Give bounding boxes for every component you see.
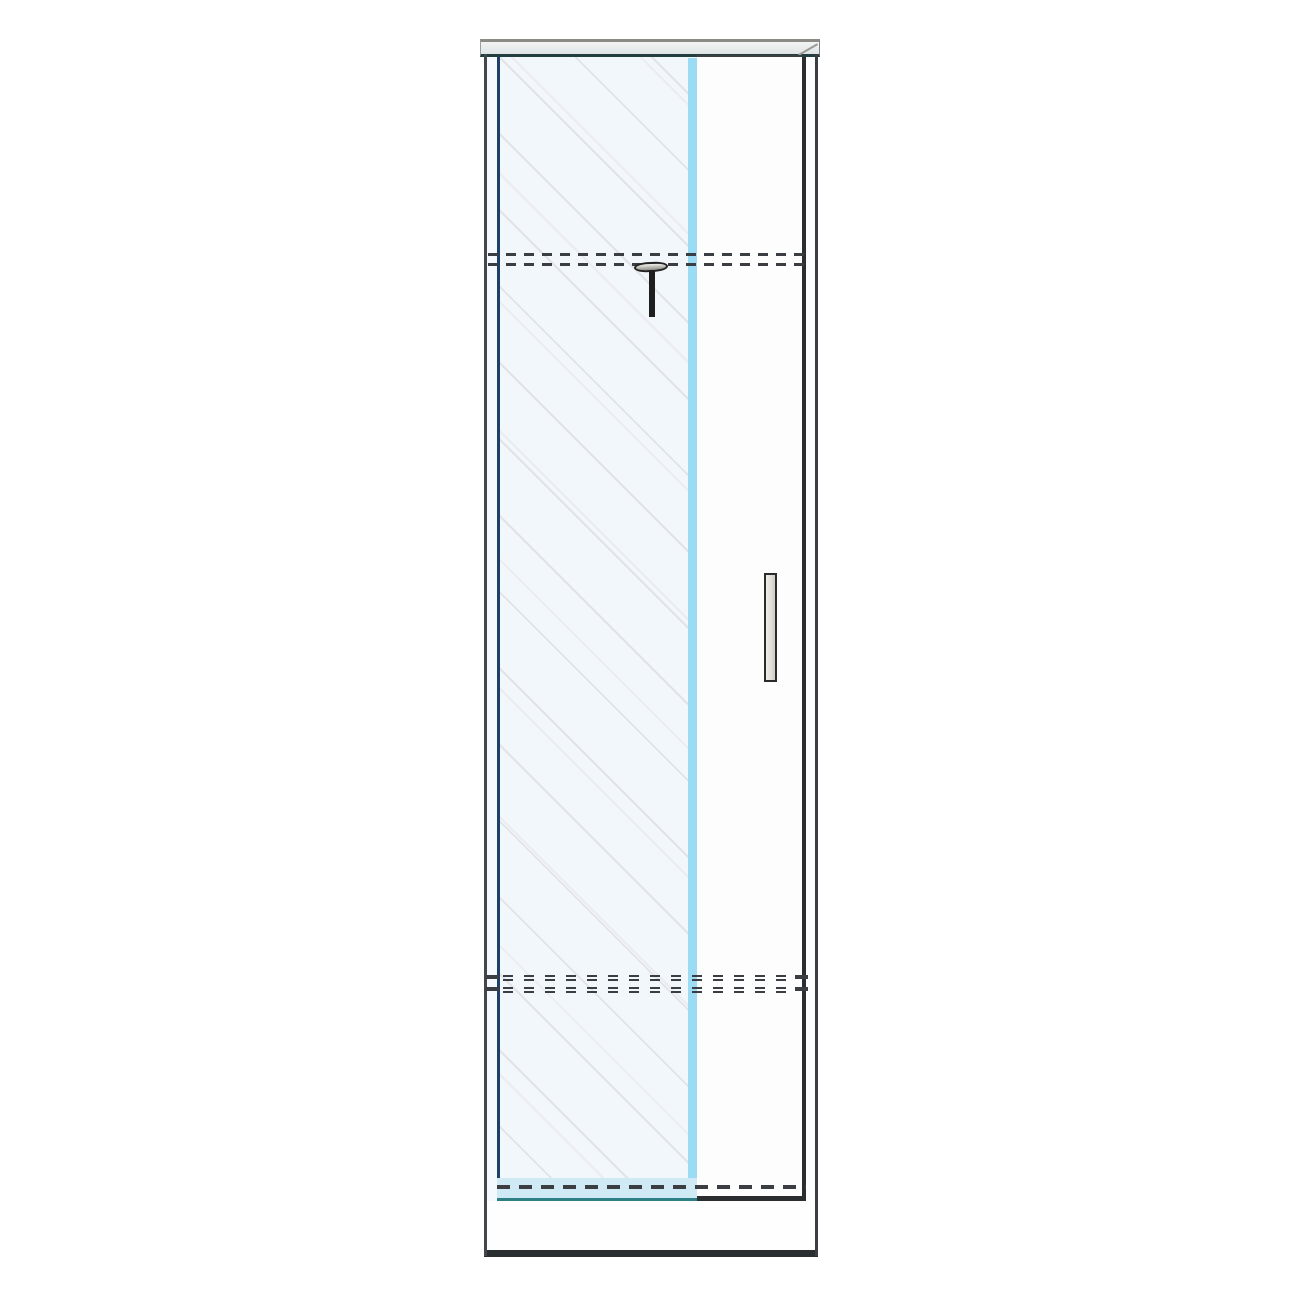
glass-door-right-edge-band	[688, 58, 697, 1199]
shelf-line-end-tick	[795, 987, 808, 991]
cabinet-bottom-edge	[484, 1250, 818, 1257]
right-hinged-door	[697, 55, 802, 1202]
glass-door-bottom-rail	[497, 1178, 697, 1201]
shelf-line-end-tick	[795, 975, 808, 979]
wardrobe-technical-drawing	[0, 0, 1300, 1300]
clothes-rail-bracket-stem	[649, 270, 655, 317]
middle-shelf-hidden-line	[503, 991, 795, 993]
right-outer-outline	[815, 54, 818, 1256]
shelf-line-end-tick	[486, 987, 499, 991]
bottom-shelf-hidden-line	[497, 1185, 806, 1189]
glass-sliding-door	[497, 57, 697, 1202]
door-handle	[764, 573, 777, 682]
plinth-base	[487, 1201, 815, 1250]
top-shelf-hidden-line-upper	[488, 253, 806, 256]
shelf-line-end-tick	[486, 975, 499, 979]
middle-shelf-hidden-line	[503, 975, 795, 977]
left-side-panel-face	[487, 57, 497, 1202]
right-door-edge-line	[802, 57, 806, 1198]
middle-shelf-hidden-line	[503, 987, 795, 989]
middle-shelf-hidden-line	[503, 979, 795, 981]
right-side-panel-face	[806, 57, 815, 1202]
left-outer-outline	[484, 54, 487, 1256]
